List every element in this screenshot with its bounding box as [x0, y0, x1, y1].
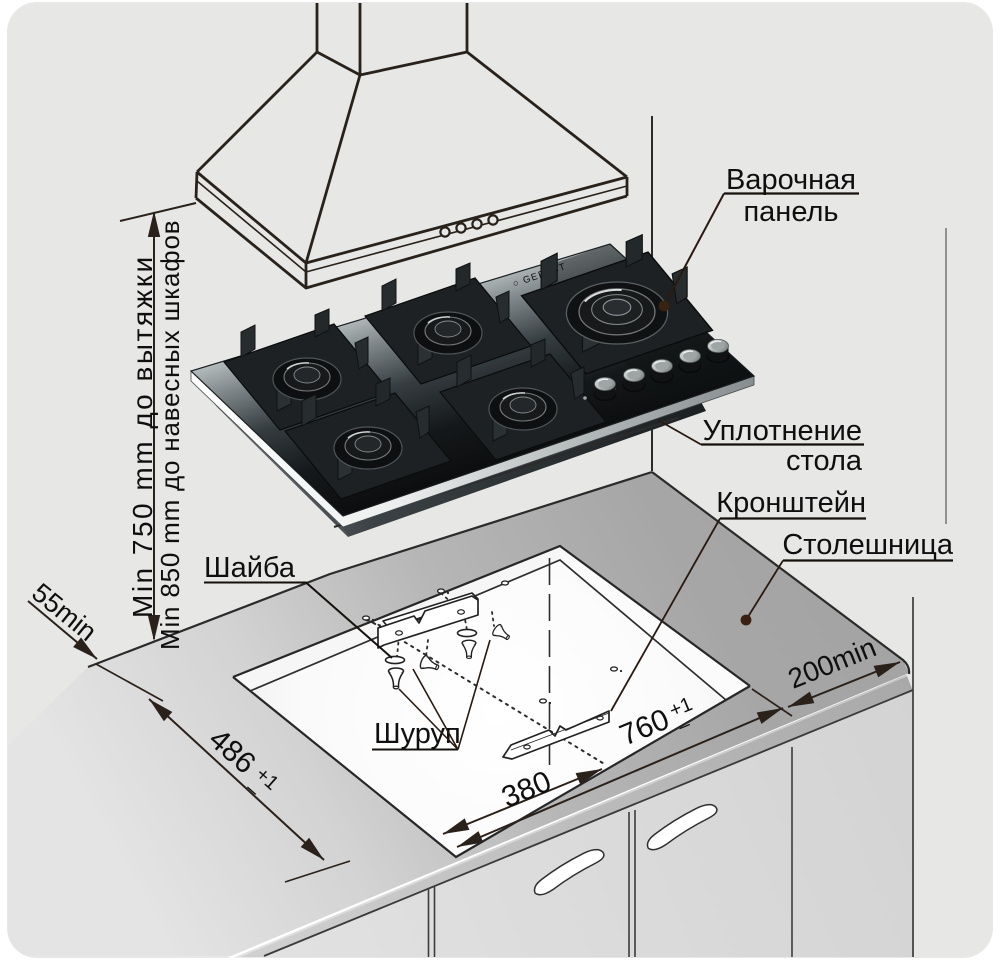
svg-text:Варочная: Варочная	[726, 164, 856, 196]
svg-text:Кронштейн: Кронштейн	[716, 487, 866, 519]
svg-text:панель: панель	[743, 196, 838, 228]
svg-text:Min 850 mm до навесных шкафов: Min 850 mm до навесных шкафов	[155, 220, 185, 650]
svg-text:Шуруп: Шуруп	[374, 718, 461, 750]
svg-text:Шайба: Шайба	[204, 552, 296, 584]
svg-text:Min 750 mm до вытяжки: Min 750 mm до вытяжки	[127, 254, 158, 618]
svg-text:Столешница: Столешница	[782, 529, 954, 561]
svg-text:Уплотнение: Уплотнение	[703, 415, 862, 447]
svg-text:стола: стола	[786, 445, 863, 477]
